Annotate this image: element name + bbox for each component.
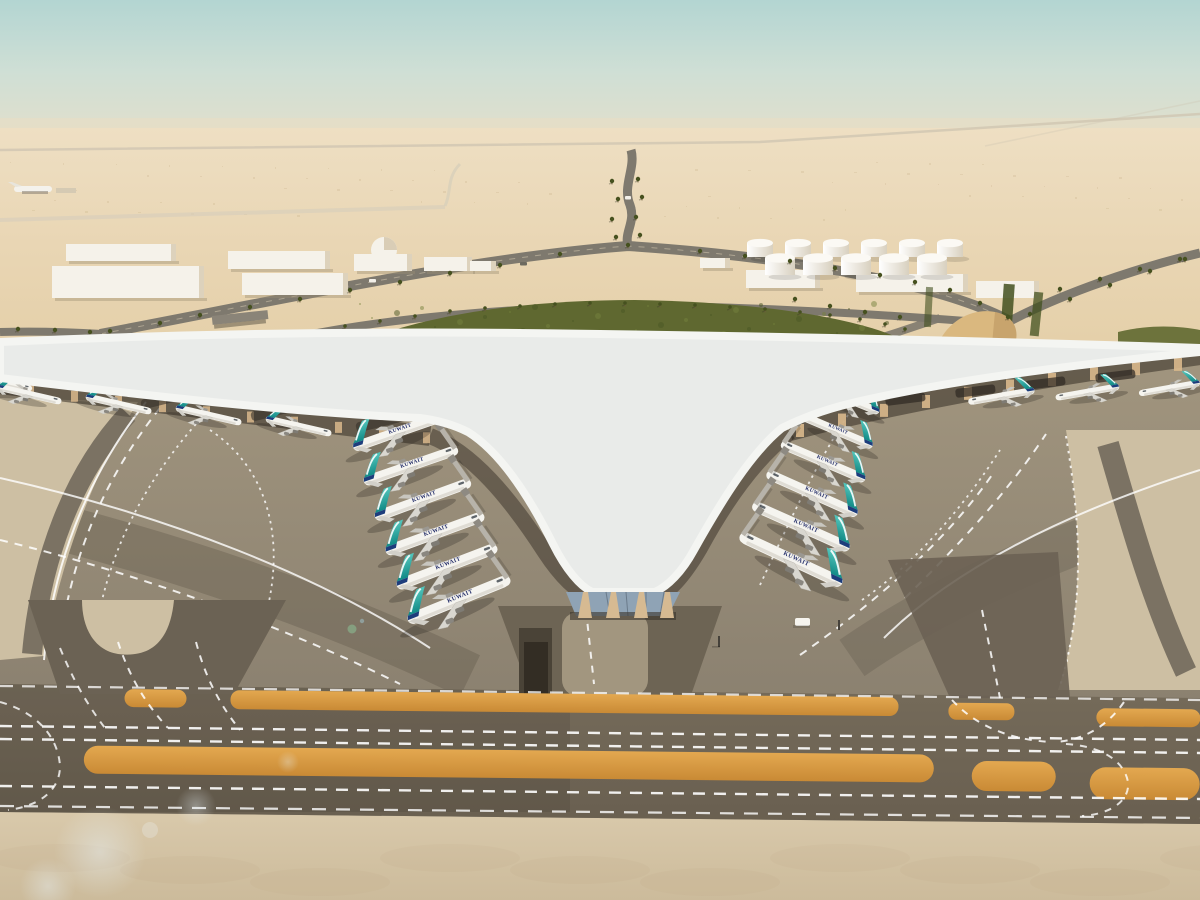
shrub — [420, 306, 424, 310]
service-vehicle — [795, 618, 810, 626]
shrub — [871, 301, 877, 307]
scrub — [845, 209, 846, 211]
palm-tree — [913, 280, 917, 284]
palm-tree — [53, 328, 57, 332]
scrub — [982, 164, 984, 165]
building-shade — [325, 251, 330, 269]
scrub — [717, 217, 719, 219]
scrub — [10, 162, 11, 163]
shrub — [483, 315, 487, 319]
scrub — [695, 169, 698, 171]
building-shade — [407, 254, 412, 271]
scrub — [85, 211, 88, 213]
scrub — [991, 185, 992, 187]
palm-tree — [828, 313, 832, 317]
scrub — [200, 176, 202, 177]
palm-tree — [828, 304, 832, 308]
scrub — [823, 219, 825, 221]
palm-tree — [623, 301, 627, 305]
palm-tree — [1068, 297, 1072, 301]
scrub — [32, 210, 35, 211]
scrub — [969, 195, 971, 197]
light-pole — [838, 620, 840, 630]
tank-top — [937, 239, 963, 247]
palm-tree — [878, 273, 882, 277]
palm-tree — [483, 306, 487, 310]
scrub — [1159, 209, 1162, 211]
scrub — [306, 178, 308, 179]
scrub — [412, 180, 414, 181]
building-shadow — [69, 261, 179, 264]
palm-tree — [553, 302, 557, 306]
shrub — [836, 332, 838, 334]
palm-tree — [88, 330, 92, 334]
scrub — [421, 201, 422, 203]
palm-tree — [788, 259, 792, 263]
scrub — [960, 174, 963, 175]
shrub — [859, 325, 865, 331]
building-shadow — [473, 271, 499, 274]
pavement-stain — [640, 868, 780, 896]
palm-tree — [588, 301, 592, 305]
scrub — [107, 201, 109, 203]
scrub — [169, 165, 170, 167]
pavement-stain — [900, 856, 1040, 884]
scrub — [1181, 199, 1183, 201]
shrub — [371, 317, 373, 319]
palm-tree — [108, 329, 112, 333]
shrub — [710, 314, 712, 316]
scrub — [907, 173, 910, 175]
palm-tree — [863, 310, 867, 314]
palm-tree — [903, 327, 907, 331]
shrub — [359, 303, 361, 305]
building-shade — [171, 244, 176, 261]
tank-top — [823, 239, 849, 247]
scrub — [1150, 188, 1151, 189]
palm-tree — [343, 324, 347, 328]
palm-tree — [558, 252, 562, 256]
shrub — [796, 316, 802, 322]
scrub — [275, 167, 276, 169]
shrub — [621, 309, 625, 313]
warehouse-building — [242, 273, 348, 295]
tank-top — [785, 239, 811, 247]
palm-tree — [1028, 312, 1032, 316]
scrub — [465, 181, 467, 183]
shrub — [457, 319, 463, 325]
pavement-stain — [770, 844, 910, 872]
tank-top — [879, 253, 909, 263]
scrub — [1022, 196, 1024, 197]
shrub — [773, 323, 775, 325]
canopy-arch — [880, 404, 888, 417]
building-shadow — [55, 298, 207, 301]
building-shadow — [231, 269, 333, 272]
service-tunnel — [524, 642, 548, 696]
palm-tree — [1138, 267, 1142, 271]
palm-tree — [743, 254, 747, 258]
scrub — [496, 192, 499, 193]
scrub — [390, 190, 393, 191]
scrub — [54, 200, 56, 201]
scrub — [297, 215, 300, 217]
scrub — [443, 191, 446, 193]
tank-top — [841, 253, 871, 263]
scrub — [381, 169, 382, 171]
pavement-stain — [380, 844, 520, 872]
building-shadow — [703, 268, 733, 271]
palm-tree — [614, 235, 618, 239]
scrub — [938, 184, 939, 185]
building-shade — [199, 266, 204, 298]
palm-tree — [693, 303, 697, 307]
warehouse-building — [424, 257, 472, 271]
palm-tree — [1006, 315, 1010, 319]
palm-tree — [413, 314, 417, 318]
scrub — [253, 177, 255, 179]
scrub — [801, 171, 804, 173]
palm-tree — [898, 315, 902, 319]
scrub — [929, 163, 931, 165]
palm-tree — [610, 179, 614, 183]
building-shade — [725, 258, 730, 268]
palm-tree — [448, 271, 452, 275]
shrub — [647, 305, 649, 307]
scrub — [748, 170, 751, 171]
scrub — [160, 202, 162, 203]
palm-tree — [298, 297, 302, 301]
building-shadow — [859, 292, 971, 295]
palm-tree — [518, 304, 522, 308]
shrub — [394, 310, 400, 316]
scrub — [1097, 187, 1098, 189]
airport-aerial-render: KUWAITKUWAITKUWAITKUWAITKUWAITKUWAITKUWA… — [0, 0, 1200, 900]
shrub — [658, 322, 664, 328]
palm-tree — [498, 263, 502, 267]
shrub — [733, 307, 739, 313]
scrub — [739, 207, 740, 209]
canopy-arch — [71, 391, 78, 402]
palm-tree — [378, 319, 382, 323]
stand-pad — [562, 612, 648, 696]
palm-tree — [1178, 257, 1182, 261]
scrub — [138, 212, 141, 213]
canopy-arch — [335, 422, 342, 433]
palm-tree — [793, 297, 797, 301]
scrub — [854, 172, 857, 173]
shrub — [546, 324, 550, 328]
shrub — [684, 318, 688, 322]
scrub — [876, 162, 878, 163]
pole-shadow — [712, 646, 720, 648]
palm-tree — [16, 327, 20, 331]
render-canvas: KUWAITKUWAITKUWAITKUWAITKUWAITKUWAITKUWA… — [0, 0, 1200, 900]
shrub — [848, 308, 850, 310]
canopy-arch — [838, 414, 846, 427]
palm-tree — [610, 217, 614, 221]
scrub — [832, 182, 833, 183]
building-shadow — [749, 288, 823, 291]
scrub — [1044, 186, 1045, 187]
terminal-entrance — [566, 592, 680, 620]
scrub — [359, 179, 361, 181]
building-shadow — [245, 295, 351, 298]
palm-tree — [978, 301, 982, 305]
scrub — [1075, 197, 1077, 199]
scrub — [116, 164, 117, 165]
palm-tree — [833, 266, 837, 270]
shrub — [595, 313, 601, 319]
warehouse-building — [66, 244, 176, 261]
scrub — [1066, 176, 1069, 177]
pavement — [0, 812, 1200, 900]
pavement-stain — [510, 856, 650, 884]
scrub — [147, 175, 149, 177]
scrub — [549, 193, 552, 195]
palm-tree — [636, 177, 640, 181]
palm-tree — [248, 305, 252, 309]
building-shade — [343, 273, 348, 295]
scrub — [518, 182, 520, 183]
scrub — [527, 203, 528, 205]
palm-tree — [198, 313, 202, 317]
scrub — [708, 196, 711, 197]
palm-tree — [398, 280, 402, 284]
palm-tree — [1058, 287, 1062, 291]
tank-top — [803, 253, 833, 263]
scrub — [76, 190, 77, 191]
palm-tree — [348, 288, 352, 292]
palm-tree — [798, 310, 802, 314]
building-shade — [491, 261, 496, 271]
palm-tree — [948, 288, 952, 292]
shrub — [822, 312, 826, 316]
scrub — [222, 166, 223, 167]
building-shade — [963, 274, 968, 292]
light-pole — [718, 636, 720, 647]
palm-tree — [698, 249, 702, 253]
scrub — [792, 208, 793, 209]
palm-tree — [658, 302, 662, 306]
scrub — [1128, 198, 1130, 199]
scrub — [337, 189, 340, 191]
scrub — [213, 203, 215, 205]
shrub — [509, 311, 511, 313]
canopy-arch — [1174, 358, 1182, 371]
scrub — [63, 163, 64, 165]
palm-tree — [1098, 277, 1102, 281]
building-shadow — [357, 271, 415, 274]
tank-top — [899, 239, 925, 247]
shrub — [759, 303, 763, 307]
shrub — [434, 326, 436, 328]
scrub — [664, 216, 666, 217]
palm-tree — [858, 317, 862, 321]
scrub — [1106, 208, 1109, 209]
palm-tree — [763, 307, 767, 311]
palm-tree — [1148, 269, 1152, 273]
scrub — [1119, 177, 1122, 179]
palm-tree — [883, 322, 887, 326]
palm-tree — [158, 321, 162, 325]
warehouse-building — [52, 266, 204, 298]
scrub — [1013, 175, 1016, 177]
shrub — [532, 304, 538, 310]
tank-top — [861, 239, 887, 247]
palm-tree — [640, 195, 644, 199]
palm-tree — [1108, 283, 1112, 287]
shrub — [572, 320, 574, 322]
scrub — [686, 206, 687, 207]
scrub — [770, 218, 772, 219]
palm-tree — [634, 215, 638, 219]
vehicle-shadow — [793, 625, 810, 628]
palm-tree — [1183, 257, 1187, 261]
scrub — [434, 170, 435, 171]
shrub — [747, 327, 751, 331]
pavement-stain — [1030, 868, 1170, 896]
tank-top — [747, 239, 773, 247]
warehouse-building — [228, 251, 330, 269]
palm-tree — [728, 305, 732, 309]
scrub — [474, 202, 475, 203]
tank-top — [917, 253, 947, 263]
scrub — [328, 168, 329, 169]
scrub — [885, 183, 886, 185]
palm-tree — [638, 233, 642, 237]
palm-tree — [626, 243, 630, 247]
palm-tree — [616, 197, 620, 201]
palm-tree — [448, 309, 452, 313]
pavement-stain — [250, 868, 390, 896]
scrub — [284, 188, 287, 189]
